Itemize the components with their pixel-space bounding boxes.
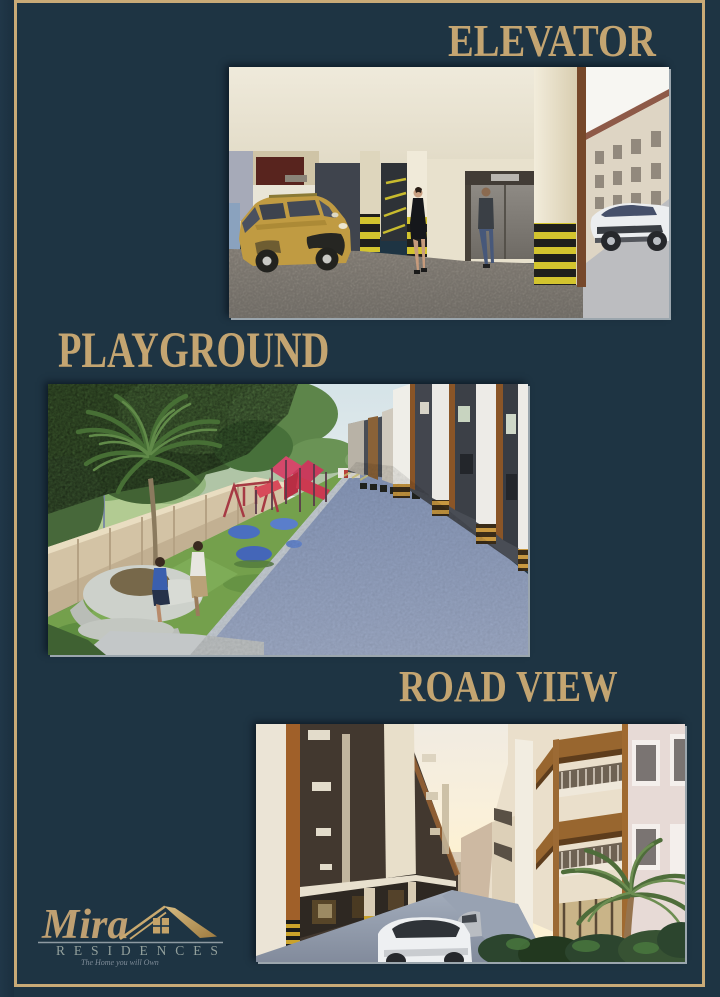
svg-text:RESIDENCES: RESIDENCES — [56, 943, 227, 958]
svg-text:Mira: Mira — [41, 902, 128, 948]
svg-text:The Home you will Own: The Home you will Own — [81, 958, 159, 967]
